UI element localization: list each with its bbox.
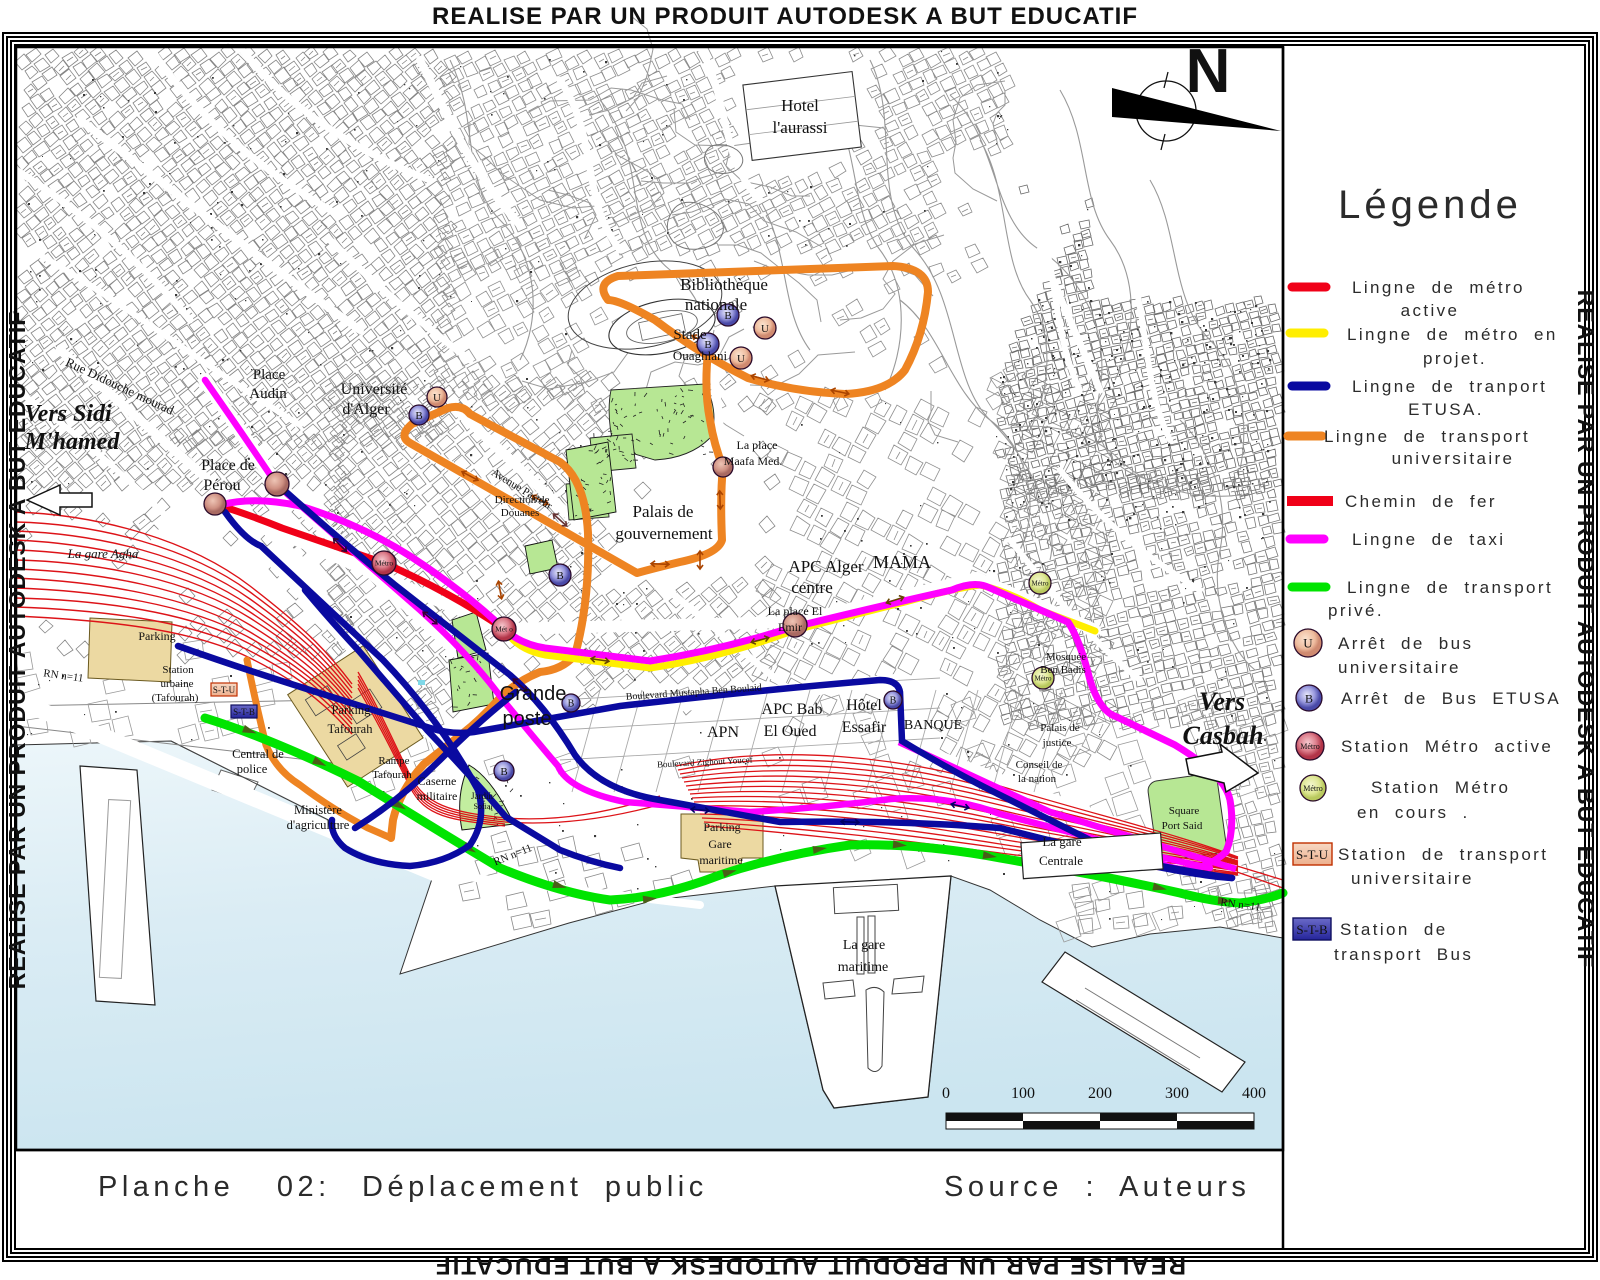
svg-text:(Tafourah): (Tafourah)	[152, 692, 199, 704]
svg-text:Palais de: Palais de	[633, 502, 694, 521]
svg-text:300: 300	[1165, 1085, 1189, 1102]
svg-text:B: B	[890, 696, 897, 707]
svg-text:APC Bab: APC Bab	[762, 701, 823, 718]
svg-text:REALISE PAR UN PRODUIT AUTODES: REALISE PAR UN PRODUIT AUTODESK A BUT ED…	[432, 3, 1138, 30]
svg-text:police: police	[237, 762, 268, 776]
svg-text:Planche 02:: Planche 02:	[98, 1171, 331, 1203]
svg-text:Tafourah: Tafourah	[372, 769, 412, 781]
svg-text:Maafa Med.: Maafa Med.	[724, 454, 783, 468]
svg-text:MAMA: MAMA	[873, 552, 931, 572]
svg-text:APN: APN	[707, 724, 739, 741]
svg-text:S-T-B: S-T-B	[233, 707, 255, 717]
svg-text:Lingne de taxi: Lingne de taxi	[1352, 530, 1505, 549]
svg-text:B: B	[568, 699, 575, 710]
svg-text:Lingne de tranport: Lingne de tranport	[1352, 377, 1547, 396]
svg-text:Parking: Parking	[703, 820, 740, 834]
svg-text:Lingne de transport: Lingne de transport	[1324, 427, 1530, 446]
svg-text:La gare: La gare	[843, 938, 885, 953]
svg-text:Sofia: Sofia	[474, 802, 491, 811]
svg-text:Station de: Station de	[1340, 920, 1448, 939]
svg-text:S-T-U: S-T-U	[213, 685, 236, 695]
svg-text:B: B	[1305, 691, 1313, 705]
svg-text:BANQUE: BANQUE	[904, 718, 962, 733]
svg-text:Métro: Métro	[1300, 742, 1320, 751]
svg-text:Place de: Place de	[201, 457, 255, 474]
svg-text:Métro: Métro	[1303, 784, 1323, 793]
svg-text:100: 100	[1011, 1085, 1035, 1102]
svg-text:militaire: militaire	[417, 789, 458, 803]
svg-text:nationale: nationale	[685, 295, 747, 314]
svg-text:la nation: la nation	[1018, 773, 1057, 785]
svg-text:Parking: Parking	[332, 703, 372, 717]
svg-text:Ben Badis: Ben Badis	[1040, 664, 1086, 676]
svg-text:S-T-U: S-T-U	[1296, 847, 1329, 862]
svg-text:Lingne de métro en: Lingne de métro en	[1347, 325, 1558, 344]
svg-text:Déplacement public: Déplacement public	[362, 1171, 708, 1203]
svg-text:Stade: Stade	[673, 327, 707, 343]
svg-text:Tafourah: Tafourah	[328, 722, 374, 736]
svg-text:poste: poste	[503, 708, 552, 730]
svg-text:Source : Auteurs: Source : Auteurs	[944, 1171, 1250, 1203]
svg-text:Ouaghlani: Ouaghlani	[673, 348, 728, 363]
svg-text:U: U	[761, 323, 769, 335]
svg-text:Place: Place	[253, 367, 286, 383]
svg-text:U: U	[1303, 636, 1313, 651]
svg-text:d'Alger: d'Alger	[342, 401, 390, 418]
svg-text:transport Bus: transport Bus	[1334, 945, 1473, 964]
svg-text:Gare: Gare	[708, 837, 731, 851]
svg-text:maritime: maritime	[838, 960, 889, 975]
svg-text:projet.: projet.	[1423, 349, 1487, 368]
svg-text:Mosquée: Mosquée	[1046, 651, 1086, 663]
svg-text:Lingne de métro: Lingne de métro	[1352, 278, 1525, 297]
svg-text:Vers: Vers	[1199, 687, 1245, 716]
svg-text:0: 0	[942, 1085, 950, 1102]
svg-text:Port Said: Port Said	[1162, 820, 1203, 832]
svg-text:La gare Agha: La gare Agha	[67, 546, 139, 561]
svg-text:active: active	[1401, 301, 1460, 320]
svg-text:universitaire: universitaire	[1351, 869, 1474, 888]
svg-text:U: U	[737, 353, 745, 365]
svg-text:gouvernement: gouvernement	[615, 524, 713, 543]
svg-text:Station: Station	[162, 664, 194, 676]
svg-text:Hôtel: Hôtel	[846, 697, 882, 714]
svg-text:S-T-B: S-T-B	[1296, 922, 1328, 937]
svg-text:La gare: La gare	[1042, 834, 1082, 849]
svg-text:Caserne: Caserne	[418, 774, 457, 788]
svg-text:U: U	[433, 392, 441, 404]
svg-text:Parking: Parking	[138, 629, 175, 643]
svg-text:La place: La place	[737, 438, 778, 452]
svg-text:Arrêt de bus: Arrêt de bus	[1338, 634, 1473, 653]
svg-text:Centrale: Centrale	[1039, 853, 1083, 868]
svg-text:maritime: maritime	[699, 853, 742, 867]
svg-text:B: B	[415, 410, 422, 422]
svg-text:REALISE PAR UN PRODUIT AUTODES: REALISE PAR UN PRODUIT AUTODESK A BUT ED…	[4, 311, 30, 990]
svg-text:Palais de: Palais de	[1040, 722, 1080, 734]
svg-text:Square: Square	[1169, 805, 1200, 817]
svg-text:privé.: privé.	[1328, 601, 1384, 620]
svg-text:Audin: Audin	[249, 386, 287, 402]
svg-text:Arrêt de Bus ETUSA: Arrêt de Bus ETUSA	[1341, 689, 1561, 708]
svg-text:d'agriculture: d'agriculture	[287, 818, 350, 832]
svg-text:Rampe: Rampe	[378, 755, 409, 767]
svg-text:universitaire: universitaire	[1338, 658, 1461, 677]
svg-text:en cours .: en cours .	[1357, 803, 1470, 822]
svg-text:REALISE PAR UN PRODUIT AUTODES: REALISE PAR UN PRODUIT AUTODESK A BUT ED…	[434, 1252, 1186, 1279]
svg-text:B: B	[500, 766, 507, 778]
svg-text:La place El: La place El	[768, 604, 823, 618]
svg-text:Grande: Grande	[500, 683, 567, 705]
svg-text:Bibliothèque: Bibliothèque	[680, 275, 768, 294]
svg-text:Essafir: Essafir	[842, 719, 887, 736]
svg-text:Ministère: Ministère	[294, 803, 342, 817]
svg-text:200: 200	[1088, 1085, 1112, 1102]
svg-text:Mét o: Mét o	[495, 625, 513, 634]
svg-text:B: B	[556, 570, 563, 582]
svg-text:universitaire: universitaire	[1392, 449, 1515, 468]
svg-text:Station Métro active: Station Métro active	[1341, 737, 1553, 756]
svg-text:l'aurassi: l'aurassi	[773, 118, 828, 137]
svg-text:Pérou: Pérou	[203, 477, 240, 494]
svg-text:REALISE PAR UN PRODUIT AUTODES: REALISE PAR UN PRODUIT AUTODESK A BUT ED…	[1573, 290, 1599, 969]
svg-text:Légende: Légende	[1338, 183, 1522, 227]
svg-text:ETUSA.: ETUSA.	[1408, 400, 1484, 419]
svg-text:Vers Sidi: Vers Sidi	[24, 401, 112, 427]
svg-text:Station Métro: Station Métro	[1371, 778, 1510, 797]
svg-text:Emir: Emir	[778, 620, 802, 634]
svg-text:Douanes: Douanes	[501, 507, 540, 519]
svg-text:Métro: Métro	[1031, 580, 1049, 588]
svg-text:Hotel: Hotel	[781, 96, 819, 115]
svg-text:El Oued: El Oued	[764, 723, 817, 740]
svg-text:Lingne de transport: Lingne de transport	[1347, 578, 1553, 597]
svg-text:Conseil de: Conseil de	[1016, 759, 1063, 771]
svg-text:Central de: Central de	[232, 747, 284, 761]
svg-text:justice: justice	[1042, 737, 1072, 749]
svg-text:Université: Université	[341, 381, 408, 398]
svg-text:urbaine: urbaine	[161, 678, 194, 690]
svg-text:APC Alger: APC Alger	[788, 557, 863, 576]
svg-text:centre: centre	[791, 578, 833, 597]
svg-text:Station de transport: Station de transport	[1338, 845, 1548, 864]
svg-text:400: 400	[1242, 1085, 1266, 1102]
svg-text:Jardin: Jardin	[471, 791, 493, 801]
svg-text:M'hamed: M'hamed	[24, 429, 121, 455]
svg-text:Chemin de fer: Chemin de fer	[1345, 492, 1497, 511]
svg-text:Métro: Métro	[375, 559, 394, 568]
